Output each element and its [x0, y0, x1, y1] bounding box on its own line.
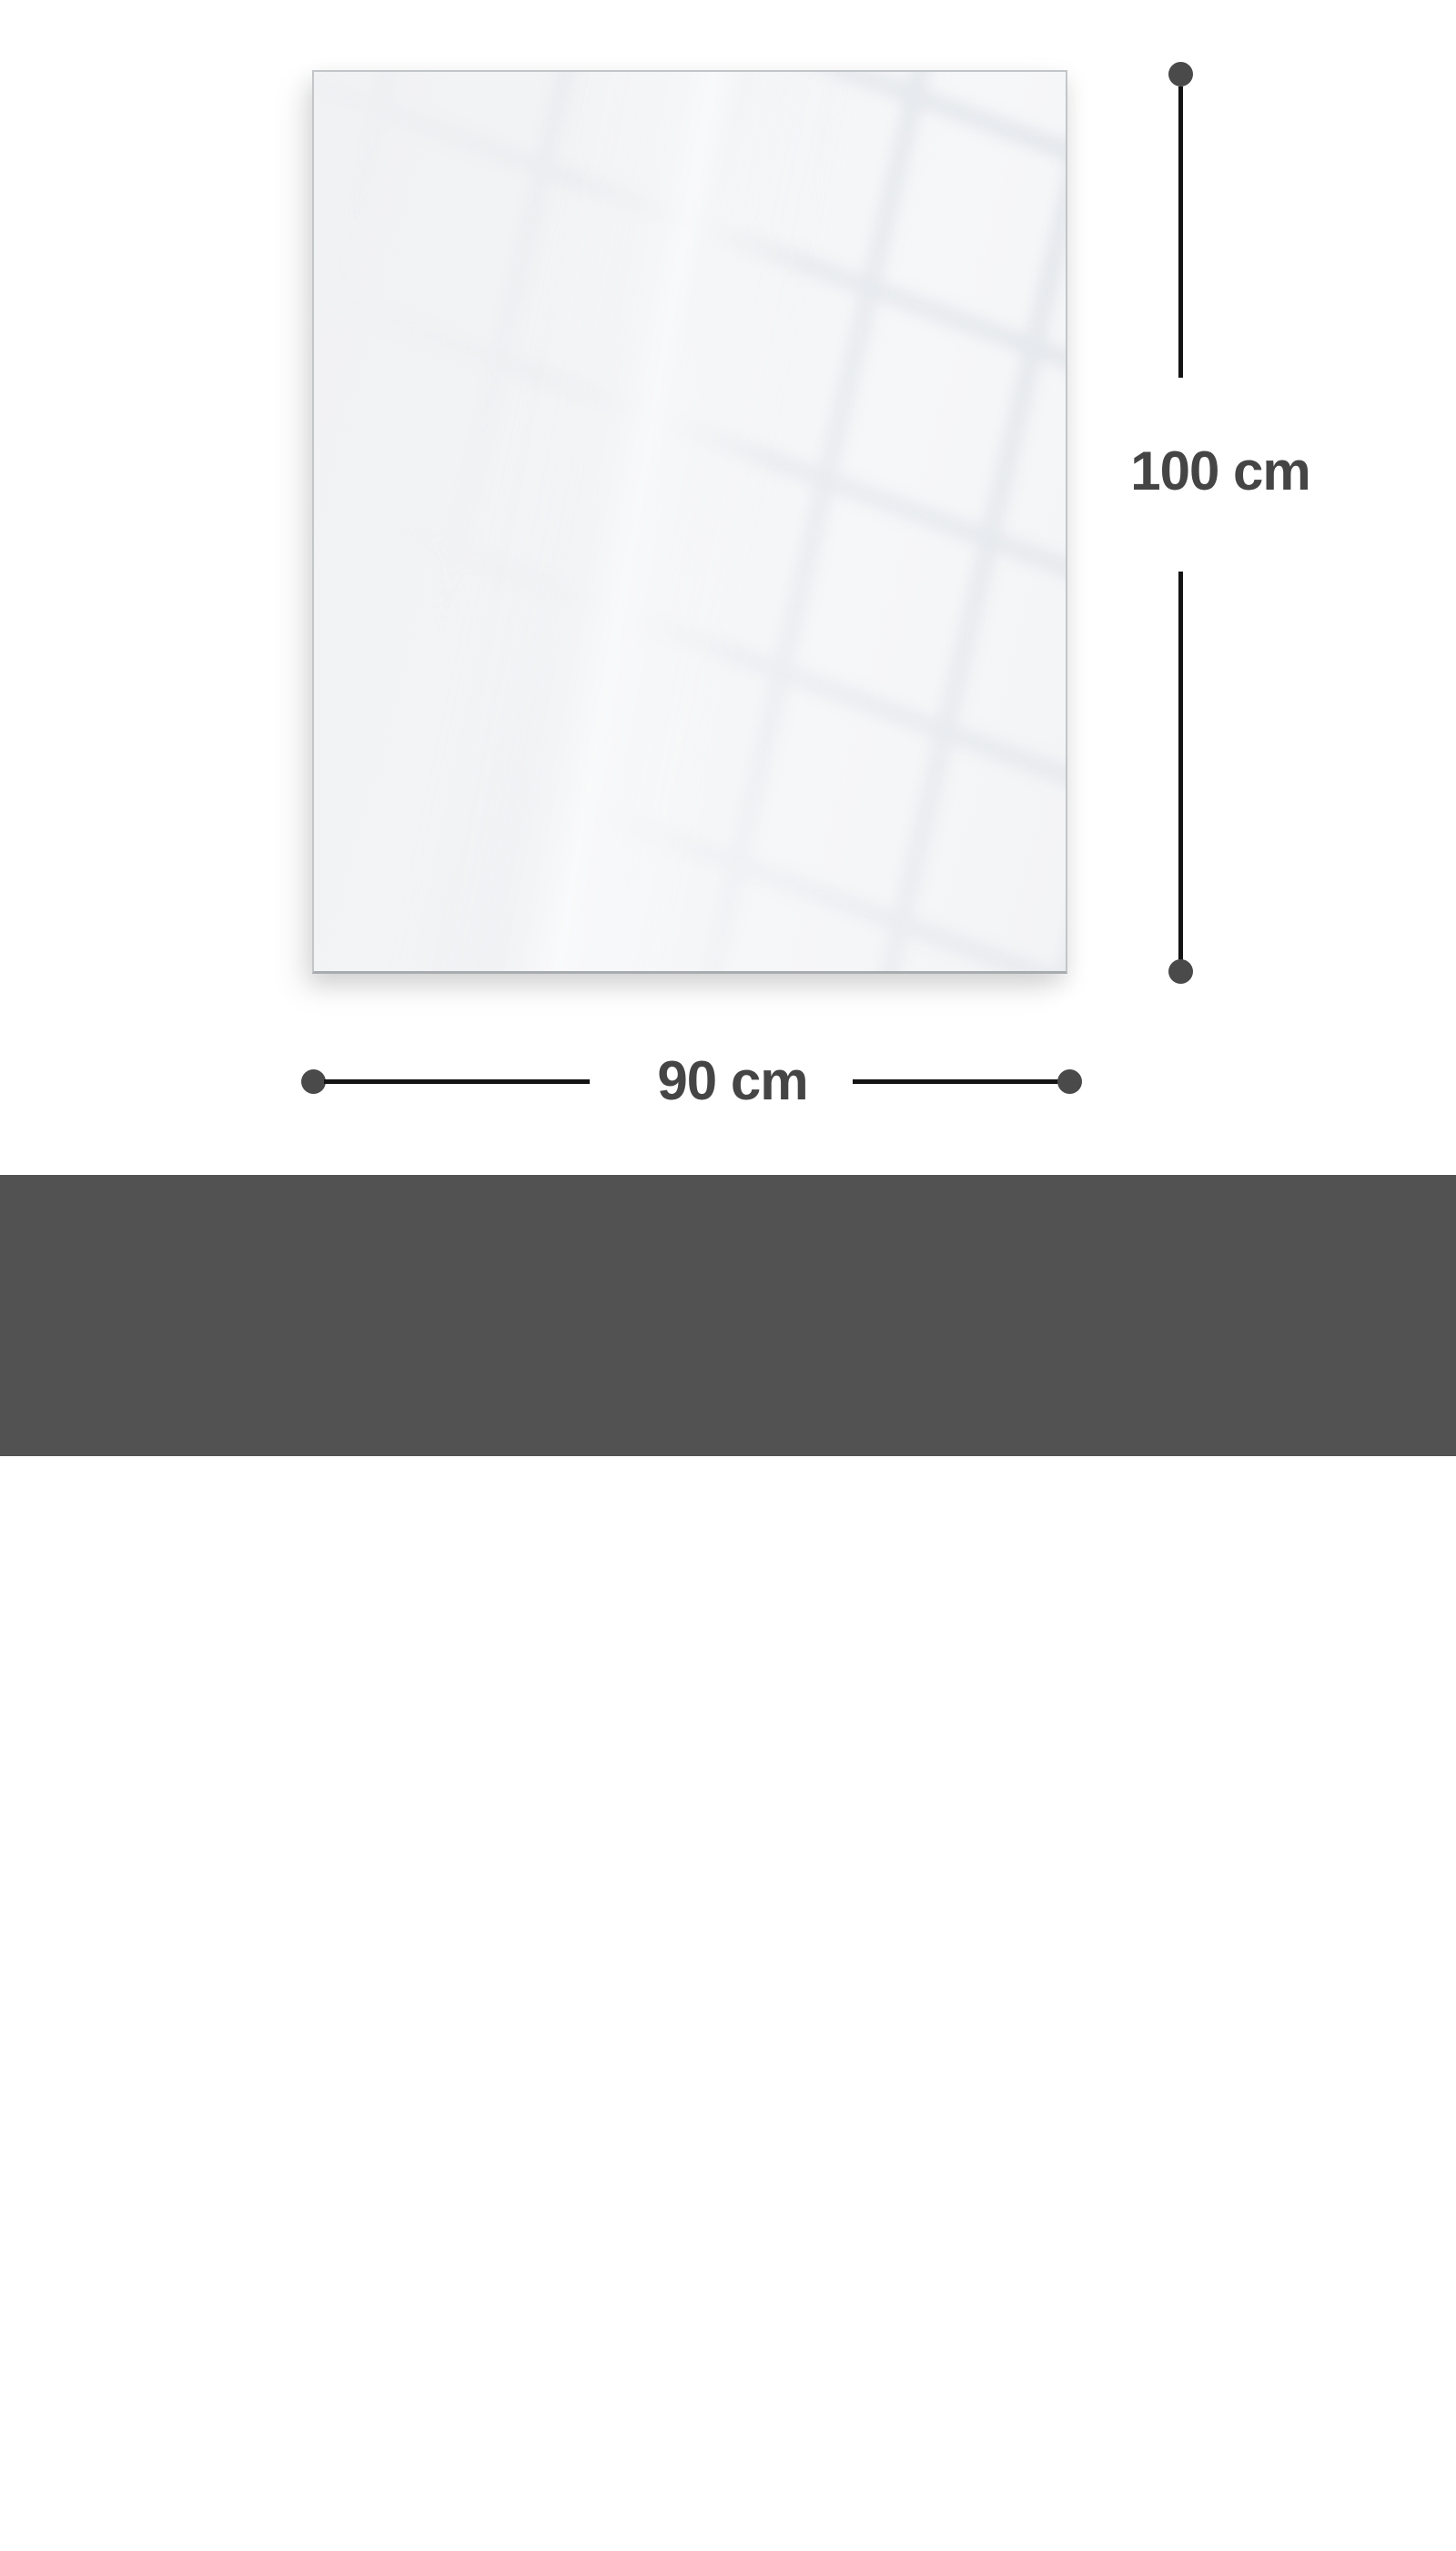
dimension-line-segment [853, 1079, 1066, 1084]
product-panel [312, 70, 1067, 974]
dimension-endpoint-dot [1057, 1069, 1082, 1094]
width-dimension-label: 90 cm [642, 1054, 824, 1108]
product-size-diagram: 100 cm 90 cm Gesamtgrösse | Size 90 x 10… [0, 0, 1456, 1456]
dimension-endpoint-dot [1168, 959, 1193, 984]
gloss-streak [314, 72, 1066, 971]
dimension-endpoint-dot [1168, 62, 1193, 86]
footer-size-value: 90 x 100 cm [150, 2479, 523, 2547]
size-info-footer: Gesamtgrösse | Size 90 x 100 cm [0, 1175, 1456, 1456]
dimension-line-segment [324, 1079, 590, 1084]
footer-heading: Gesamtgrösse | Size [152, 2415, 624, 2465]
dimension-line-segment [1178, 572, 1183, 960]
height-dimension-label: 100 cm [1120, 444, 1320, 499]
dimension-line-segment [1178, 86, 1183, 378]
dimension-endpoint-dot [301, 1069, 326, 1094]
